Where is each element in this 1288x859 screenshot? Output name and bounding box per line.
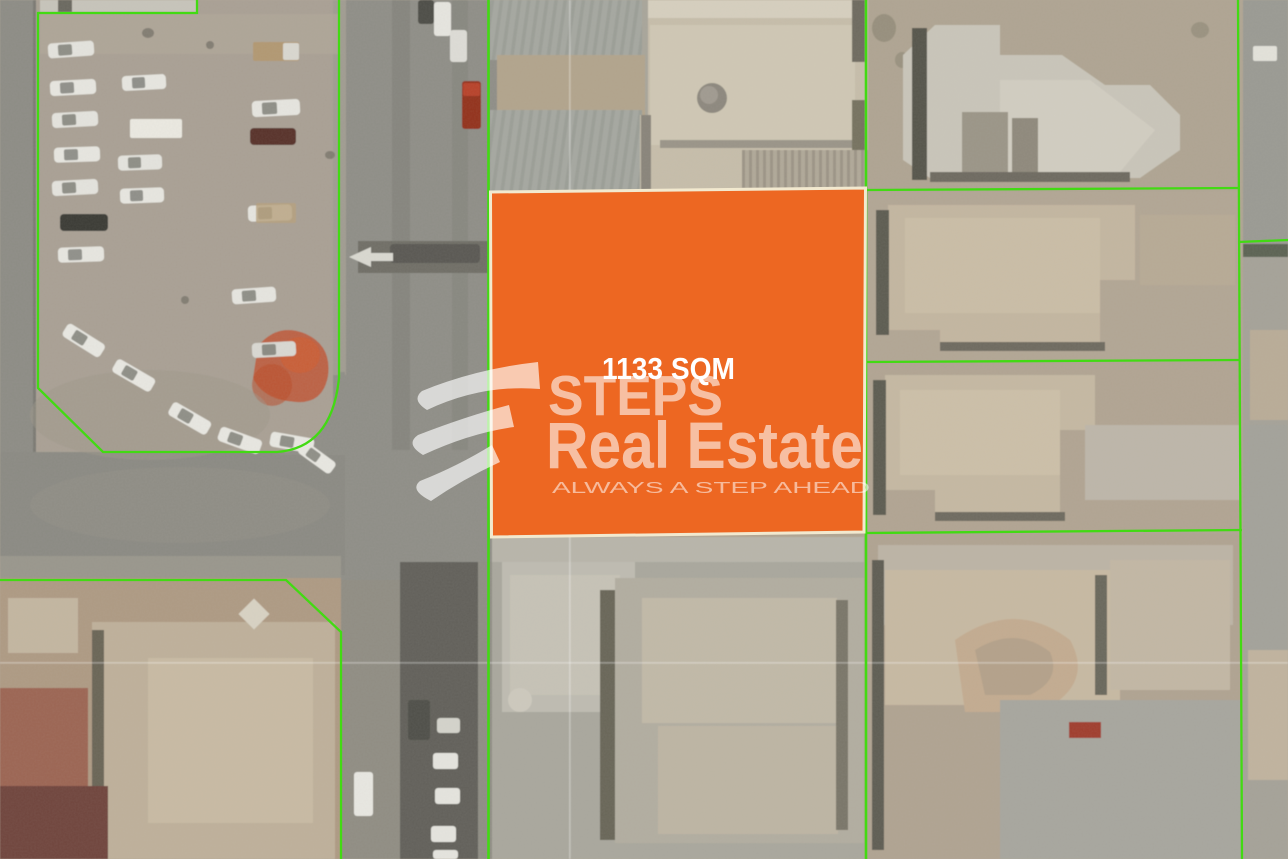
svg-text:ALWAYS A STEP AHEAD: ALWAYS A STEP AHEAD	[552, 480, 870, 497]
svg-text:Real Estate: Real Estate	[546, 408, 863, 482]
svg-text:1133 SQM: 1133 SQM	[602, 351, 735, 386]
